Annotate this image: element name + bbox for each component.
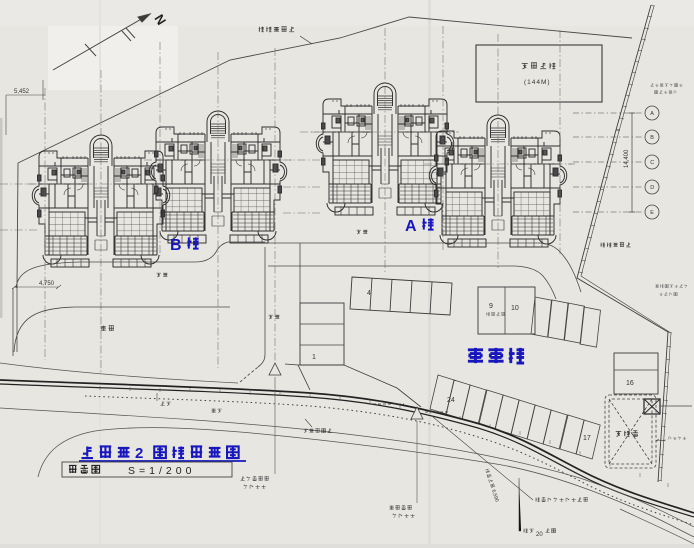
svg-text:A: A	[650, 111, 654, 117]
svg-text:16: 16	[626, 380, 634, 387]
svg-text:(144M): (144M)	[524, 79, 551, 86]
svg-text:20: 20	[536, 532, 543, 538]
svg-text:9: 9	[489, 303, 493, 310]
svg-text:2: 2	[135, 445, 143, 462]
svg-text:4,750: 4,750	[39, 281, 55, 287]
svg-text:17: 17	[583, 435, 591, 442]
svg-text:A: A	[405, 218, 417, 235]
svg-text:B: B	[650, 135, 654, 141]
svg-text:D: D	[650, 185, 654, 191]
svg-text:S=1/200: S=1/200	[128, 465, 195, 477]
svg-text:1: 1	[312, 354, 316, 361]
svg-text:E: E	[650, 210, 654, 216]
svg-text:4: 4	[367, 290, 371, 297]
svg-text:10: 10	[511, 305, 519, 312]
svg-text:B: B	[170, 237, 182, 254]
svg-text:5,452: 5,452	[14, 89, 30, 95]
svg-text:14,400: 14,400	[624, 149, 630, 168]
svg-text:24: 24	[447, 397, 455, 404]
svg-text:C: C	[650, 160, 654, 166]
